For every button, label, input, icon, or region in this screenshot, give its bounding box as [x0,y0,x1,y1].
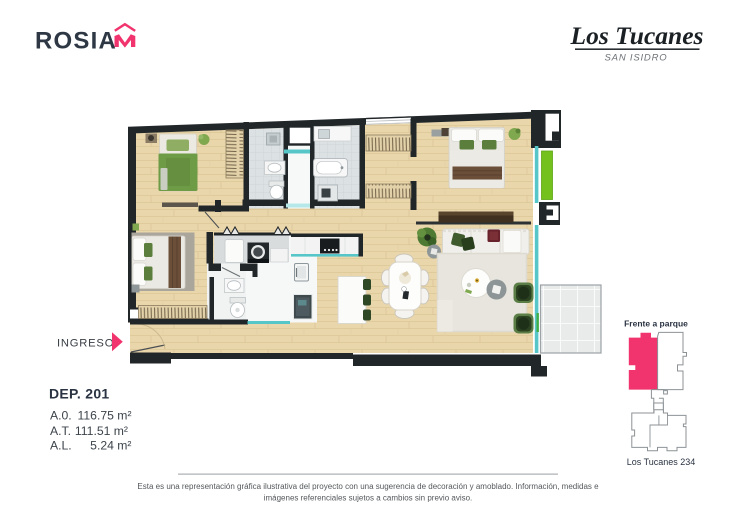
svg-text:5.24 m²: 5.24 m² [90,439,131,453]
svg-text:INGRESO: INGRESO [57,338,114,350]
svg-text:A.0.: A.0. [50,409,72,423]
svg-text:DEP. 201: DEP. 201 [49,386,110,402]
svg-text:Los Tucanes: Los Tucanes [570,21,704,50]
svg-text:A.T.: A.T. [50,424,71,438]
svg-text:SAN ISIDRO: SAN ISIDRO [605,53,668,64]
svg-text:imágenes referenciales sujetos: imágenes referenciales sujetos a cambios… [264,494,473,503]
svg-text:ROSIA: ROSIA [35,28,117,55]
svg-text:Esta es una representación grá: Esta es una representación gráfica ilust… [137,482,599,491]
svg-text:116.75 m²: 116.75 m² [78,409,132,423]
svg-text:Los Tucanes 234: Los Tucanes 234 [627,457,696,467]
svg-text:111.51 m²: 111.51 m² [75,424,128,438]
svg-text:A.L.: A.L. [50,439,72,453]
svg-text:Frente a parque: Frente a parque [624,319,688,329]
